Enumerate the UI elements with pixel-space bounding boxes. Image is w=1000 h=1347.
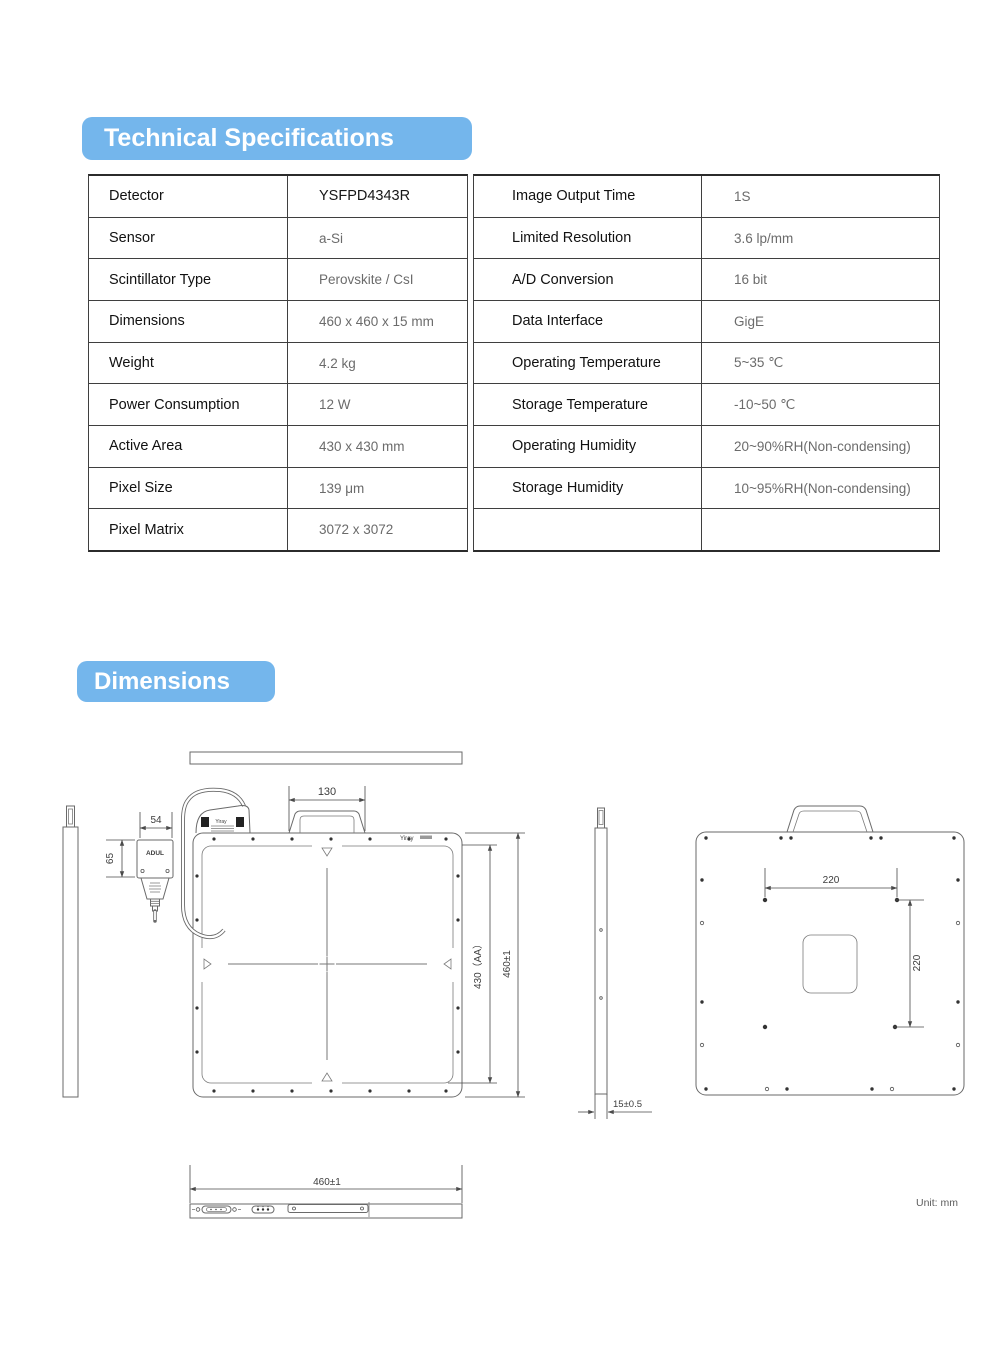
- spec-value-cell: 460 x 460 x 15 mm: [288, 301, 467, 342]
- table-row: Data Interface GigE: [474, 300, 939, 342]
- spec-value-cell: 16 bit: [702, 259, 939, 300]
- dim-label: 54: [150, 815, 162, 826]
- spec-value-cell: GigE: [702, 301, 939, 342]
- spec-label-cell: Scintillator Type: [89, 259, 288, 300]
- spec-label-cell: A/D Conversion: [474, 259, 702, 300]
- dim-label: 220: [823, 875, 840, 886]
- detached-connector: ADUL: [137, 840, 173, 921]
- spec-label-cell: Pixel Matrix: [89, 509, 288, 550]
- spec-label-cell: Operating Temperature: [474, 343, 702, 384]
- brand-text: Yiray: [400, 836, 413, 842]
- dim-connector-width: 54: [140, 812, 172, 838]
- dim-label: 460±1: [313, 1177, 341, 1188]
- dim-active-area-height: 430（AA）: [448, 845, 497, 1083]
- spec-value-cell: -10~50 ℃: [702, 384, 939, 425]
- spec-label-cell: Power Consumption: [89, 384, 288, 425]
- spec-value-cell: [702, 509, 939, 550]
- spec-value-cell: 3072 x 3072: [288, 509, 467, 550]
- unit-note: Unit: mm: [916, 1197, 958, 1209]
- spec-value-cell: 4.2 kg: [288, 343, 467, 384]
- table-row: Storage Humidity 10~95%RH(Non-condensing…: [474, 467, 939, 509]
- spec-value-cell: 10~95%RH(Non-condensing): [702, 468, 939, 509]
- table-row: Pixel Matrix 3072 x 3072: [89, 508, 467, 550]
- spec-label-cell: Weight: [89, 343, 288, 384]
- dim-label: 460±1: [502, 950, 513, 978]
- dimension-drawings: Yiray 130 430（AA） 460±1 Yiray: [0, 730, 1000, 1250]
- table-row: Pixel Size 139 μm: [89, 467, 467, 509]
- spec-value-cell: 1S: [702, 176, 939, 217]
- section-heading-dimensions: Dimensions: [77, 661, 275, 702]
- dim-label: 430（AA）: [472, 939, 484, 989]
- bottom-edge-view: 460±1: [190, 1165, 462, 1218]
- spec-value-cell: 20~90%RH(Non-condensing): [702, 426, 939, 467]
- triangle-marker-top: [322, 848, 332, 856]
- spec-label-cell: [474, 509, 702, 550]
- dim-label: 65: [105, 853, 116, 865]
- table-row: Sensor a-Si: [89, 217, 467, 259]
- front-view: Yiray: [193, 811, 462, 1097]
- top-edge-view: [190, 752, 462, 764]
- table-row: A/D Conversion 16 bit: [474, 258, 939, 300]
- spec-label-cell: Storage Humidity: [474, 468, 702, 509]
- center-crosshair: [228, 868, 427, 1060]
- spec-label-cell: Image Output Time: [474, 176, 702, 217]
- spec-value-cell: a-Si: [288, 218, 467, 259]
- section-heading-technical-specifications: Technical Specifications: [82, 117, 472, 160]
- table-row: Detector YSFPD4343R: [89, 176, 467, 217]
- table-row: Power Consumption 12 W: [89, 383, 467, 425]
- spec-value-cell: 12 W: [288, 384, 467, 425]
- dim-connector-height: 65: [105, 840, 135, 877]
- table-row: Storage Temperature -10~50 ℃: [474, 383, 939, 425]
- table-row: Dimensions 460 x 460 x 15 mm: [89, 300, 467, 342]
- spec-label-cell: Active Area: [89, 426, 288, 467]
- spec-label-cell: Dimensions: [89, 301, 288, 342]
- table-row: Active Area 430 x 430 mm: [89, 425, 467, 467]
- dim-label: 15±0.5: [613, 1099, 642, 1110]
- table-row: Operating Humidity 20~90%RH(Non-condensi…: [474, 425, 939, 467]
- cable-and-connector: Yiray ADUL 54 65: [105, 790, 250, 937]
- dim-mount-width: 220: [765, 868, 897, 897]
- dim-label: 130: [318, 786, 336, 798]
- connector-brand-text: ADUL: [146, 850, 164, 857]
- table-row: Weight 4.2 kg: [89, 342, 467, 384]
- spec-label-cell: Storage Temperature: [474, 384, 702, 425]
- spec-label-cell: Sensor: [89, 218, 288, 259]
- spec-value-cell: 3.6 lp/mm: [702, 218, 939, 259]
- spec-label-cell: Detector: [89, 176, 288, 217]
- back-view: 220 220: [696, 806, 964, 1095]
- spec-value-cell: Perovskite / CsI: [288, 259, 467, 300]
- table-row: Scintillator Type Perovskite / CsI: [89, 258, 467, 300]
- spec-table-right: Image Output Time 1S Limited Resolution …: [473, 174, 940, 552]
- spec-value-cell: 430 x 430 mm: [288, 426, 467, 467]
- table-row: Operating Temperature 5~35 ℃: [474, 342, 939, 384]
- spec-label-cell: Data Interface: [474, 301, 702, 342]
- dim-mount-height: 220: [893, 900, 924, 1027]
- table-row: Image Output Time 1S: [474, 176, 939, 217]
- dim-label: 220: [912, 954, 923, 971]
- table-row: Limited Resolution 3.6 lp/mm: [474, 217, 939, 259]
- spec-label-cell: Limited Resolution: [474, 218, 702, 259]
- side-view-thickness: 15±0.5: [578, 808, 652, 1119]
- brand-text: Yiray: [215, 819, 227, 825]
- spec-value-cell: 139 μm: [288, 468, 467, 509]
- spec-label-cell: Operating Humidity: [474, 426, 702, 467]
- spec-label-cell: Pixel Size: [89, 468, 288, 509]
- table-row: [474, 508, 939, 550]
- left-side-view: [63, 806, 78, 1097]
- spec-table-left: Detector YSFPD4343R Sensor a-Si Scintill…: [88, 174, 468, 552]
- spec-value-cell: 5~35 ℃: [702, 343, 939, 384]
- handle-front: [289, 811, 365, 833]
- spec-value-cell: YSFPD4343R: [288, 176, 467, 217]
- spec-sheet-page: { "headings": { "technical_specification…: [0, 0, 1000, 1347]
